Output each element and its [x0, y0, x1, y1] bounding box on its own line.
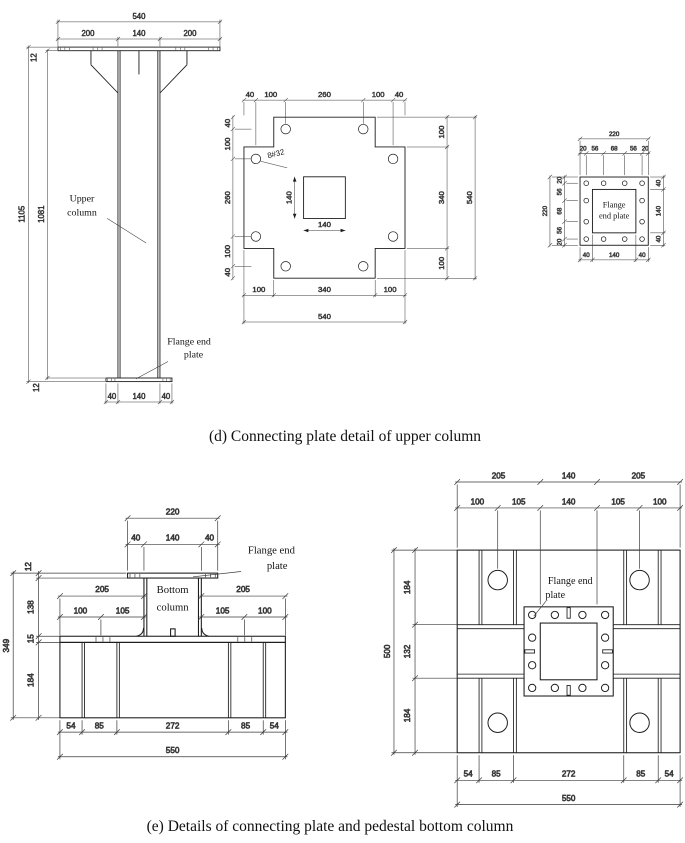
top-connecting-plate: [58, 47, 220, 51]
dim-label: 12: [30, 53, 39, 62]
dim-label: 340: [437, 191, 446, 204]
dim-label: 100: [437, 257, 446, 270]
dim-label: 100: [223, 245, 232, 258]
dim-label: 100: [471, 497, 485, 506]
bottom-column-elevation: 220 40 140 40 Flange end plate: [5, 505, 337, 797]
dim-label: 100: [372, 90, 385, 99]
anchor-holes: [488, 570, 649, 732]
caption-d: (d) Connecting plate detail of upper col…: [45, 428, 645, 446]
dim-label: 140: [609, 252, 620, 259]
base-gussets: [137, 628, 209, 636]
dim-label: 40: [656, 235, 663, 242]
bottom-dimensions: 54 85 272 85 54 550: [454, 755, 683, 807]
center-flange-plate: [524, 607, 613, 696]
dim-label: 54: [66, 721, 76, 730]
left-dimensions: 500 184 132 184: [383, 547, 457, 755]
dim-label: 105: [216, 606, 230, 615]
part-label: Upper: [70, 194, 95, 205]
dim-label: 56: [591, 146, 598, 153]
dim-label: 184: [403, 580, 412, 594]
bolt-hatch-marks: [108, 379, 170, 381]
dim-label: 200: [81, 29, 95, 38]
dim-label: 56: [556, 188, 563, 195]
part-label: column: [157, 602, 190, 613]
dim-label: 100: [437, 126, 446, 139]
dim-label: 15: [27, 634, 36, 644]
hole-note-label: 8#32: [266, 147, 285, 160]
part-label: end plate: [599, 211, 630, 220]
right-dimensions: 40 140 40: [650, 175, 666, 248]
dim-label: 105: [611, 497, 625, 506]
gussets: [91, 51, 187, 93]
caption-e: (e) Details of connecting plate and pede…: [30, 818, 630, 836]
dim-label: 140: [318, 220, 331, 229]
dim-label: 220: [166, 508, 180, 517]
right-dimensions: 100 340 100 540: [377, 115, 477, 280]
part-label: column: [67, 207, 97, 218]
flange-end-plate-label: Flange end plate: [599, 201, 630, 221]
dim-label: 205: [632, 471, 646, 480]
dim-label: 184: [403, 708, 412, 722]
dim-label: 12: [32, 383, 41, 392]
dim-label: 1105: [18, 205, 27, 222]
upper-column-label: Upper column: [67, 194, 146, 243]
dim-label: 550: [562, 794, 576, 803]
dim-label: 40: [639, 252, 646, 259]
dim-label: 205: [95, 585, 109, 594]
dim-label: 272: [166, 721, 180, 730]
dim-label: 20: [642, 146, 649, 153]
part-label: plate: [545, 590, 565, 601]
dim-label: 140: [166, 534, 180, 543]
dim-label: 54: [464, 770, 474, 779]
dim-label: 100: [384, 285, 397, 294]
bottom-flange-end-plate: [106, 378, 172, 382]
bolt-hatch-marks: [60, 48, 217, 50]
plate-outline: [244, 117, 405, 278]
dim-label: 40: [583, 252, 590, 259]
dim-label: 260: [223, 191, 232, 204]
top-dimensions: 220 40 140 40: [125, 508, 221, 571]
dim-label: 12: [24, 562, 33, 572]
left-dimensions: 1105 1081 12 12: [18, 45, 105, 392]
top-dimensions: 540 200 140 200: [56, 12, 222, 47]
top-dimensions: 220 20 56 68 56 20: [578, 131, 651, 175]
dim-label: 40: [131, 534, 141, 543]
dim-label: 105: [512, 497, 526, 506]
part-label: plate: [184, 350, 204, 361]
bottom-dimensions: 54 85 272 85 54 550: [57, 720, 288, 759]
beam-flange-lines: [457, 625, 680, 678]
pedestal-plan: Flange end plate 205 140 205 100 105 140…: [385, 450, 685, 818]
flange-end-plate-label: Flange end plate: [136, 336, 211, 378]
part-label: plate: [267, 561, 288, 572]
top-dimensions: 40 100 260 100 40: [242, 90, 407, 145]
left-dimensions: 40 100 260 100 40: [223, 115, 251, 280]
dim-label: 132: [403, 644, 412, 658]
connecting-plate-plan: 40 100 260 100 40 40 100 260 100 40: [218, 84, 490, 340]
dim-label: 100: [252, 285, 265, 294]
column-section: [304, 177, 346, 219]
flange-end-plate-detail: 220 20 56 68 56 20 220 20 56 68: [540, 128, 685, 280]
dim-label: 140: [562, 471, 576, 480]
dim-label: 220: [609, 131, 620, 138]
bottom-dimensions: 40 140 40: [104, 383, 174, 404]
dim-label: 540: [465, 191, 474, 204]
dim-label: 140: [562, 497, 576, 506]
dim-label: 20: [556, 176, 563, 183]
dim-label: 200: [183, 29, 197, 38]
bottom-column-label: Bottom column: [157, 585, 190, 613]
column-section: [540, 623, 597, 680]
dim-label: 56: [630, 146, 637, 153]
dim-label: 272: [562, 770, 576, 779]
part-label: Flange end: [167, 336, 211, 347]
dim-label: 54: [270, 721, 280, 730]
dim-label: 540: [132, 12, 146, 21]
dim-label: 40: [108, 392, 117, 401]
dim-label: 220: [542, 205, 549, 216]
dim-label: 85: [492, 770, 502, 779]
dim-label: 550: [166, 746, 180, 755]
dim-label: 100: [258, 606, 272, 615]
dim-label: 40: [162, 392, 171, 401]
pedestal: [60, 628, 285, 718]
stiffener-tabs: [525, 608, 613, 696]
flange-end-plate-label: Flange end plate: [193, 545, 295, 576]
bolt-hatch-marks: [96, 637, 252, 642]
dim-label: 340: [318, 285, 331, 294]
dim-label: 85: [95, 721, 105, 730]
dim-label: 205: [492, 471, 506, 480]
hole-callout: 8#32: [261, 147, 288, 168]
stiffeners: [82, 642, 266, 717]
dim-label: 140: [132, 29, 146, 38]
dim-label: 85: [636, 770, 646, 779]
dim-label: 54: [665, 770, 675, 779]
part-label: Bottom: [157, 585, 190, 596]
dim-label: 68: [611, 146, 618, 153]
dim-label: 349: [2, 638, 11, 652]
dim-label: 105: [116, 606, 130, 615]
dim-label: 100: [264, 90, 277, 99]
bottom-dimensions: 100 340 100 540: [242, 250, 407, 324]
dim-label: 140: [656, 205, 663, 216]
left-dimensions: 220 20 56 68 56 20: [542, 175, 578, 248]
dim-label: 20: [556, 238, 563, 245]
dim-label: 40: [223, 268, 232, 277]
dim-label: 40: [205, 534, 215, 543]
dim-label: 56: [556, 226, 563, 233]
dim-label: 40: [223, 119, 232, 128]
dim-label: 140: [132, 392, 146, 401]
dim-label: 138: [27, 600, 36, 614]
dim-label: 68: [556, 207, 563, 214]
dim-label: 500: [383, 644, 392, 658]
dim-label: 20: [580, 146, 587, 153]
dim-label: 40: [395, 90, 404, 99]
dim-label: 540: [318, 312, 331, 321]
part-label: Flange: [603, 201, 626, 210]
dim-label: 40: [246, 90, 255, 99]
column-shaft: [118, 51, 160, 378]
part-label: Flange end: [248, 545, 296, 556]
dim-label: 205: [236, 585, 250, 594]
dim-label: 100: [74, 606, 88, 615]
dim-label: 100: [223, 138, 232, 151]
part-label: Flange end: [548, 576, 593, 587]
dim-label: 85: [241, 721, 251, 730]
dim-label: 40: [656, 179, 663, 186]
dim-label: 260: [318, 90, 331, 99]
column-section-dimensions: 140 140: [284, 177, 345, 232]
figure-canvas: 540 200 140 200: [0, 0, 685, 843]
bolt-holes: [251, 124, 398, 271]
flange-end-plate-label: Flange end plate: [534, 576, 593, 616]
dim-label: 140: [284, 191, 293, 204]
dim-label: 1081: [37, 206, 46, 223]
dim-label: 184: [27, 673, 36, 687]
dim-label: 100: [653, 497, 667, 506]
